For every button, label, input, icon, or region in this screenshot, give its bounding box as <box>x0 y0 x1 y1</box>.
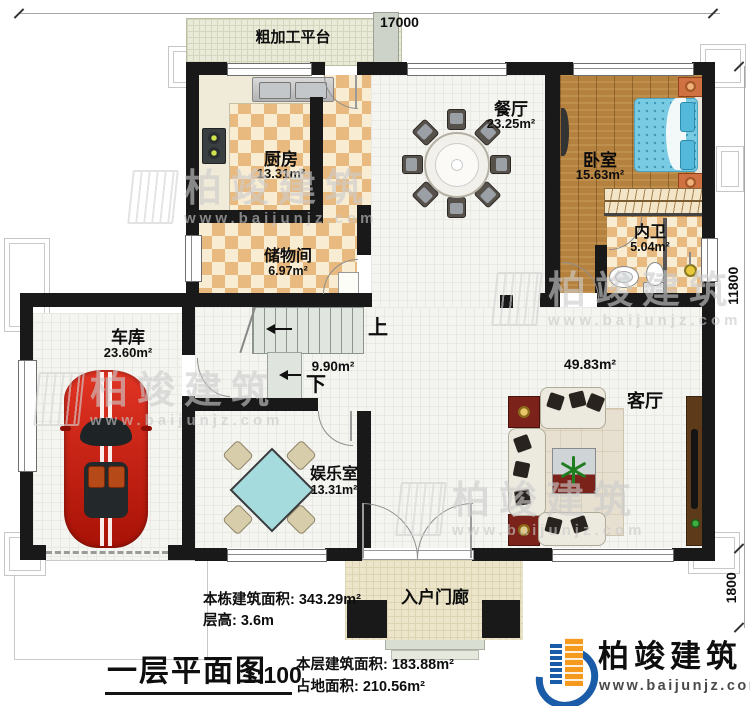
porch-label: 入户门廊 <box>370 588 500 607</box>
sink-basin <box>259 82 291 99</box>
logo-tower-orange <box>565 638 583 686</box>
wall <box>310 62 325 75</box>
wall <box>20 293 372 307</box>
wall <box>357 205 371 255</box>
wall <box>182 396 195 548</box>
watermark-logo <box>127 170 179 224</box>
pillow <box>680 102 695 132</box>
side-table <box>508 514 540 546</box>
car <box>64 370 148 548</box>
wall <box>505 62 573 75</box>
window <box>552 549 674 562</box>
door-leaf <box>470 503 472 558</box>
window <box>227 549 327 562</box>
wall <box>182 307 195 355</box>
bathroom-sink <box>609 266 639 288</box>
wall <box>702 280 715 548</box>
dining-chair <box>402 155 423 174</box>
dining-chair <box>447 109 466 130</box>
car-seat <box>108 466 125 488</box>
sofa-pillow <box>514 489 531 506</box>
garage-area: 23.60m² <box>88 346 168 361</box>
bedroom-area: 15.63m² <box>560 168 640 183</box>
exterior-ledge <box>716 146 744 192</box>
entertainment-area: 13.31m² <box>300 483 368 497</box>
title-underline <box>105 692 292 695</box>
stairs-area: 9.90m² <box>306 359 360 374</box>
kitchen-area: 13.31m² <box>240 167 322 182</box>
floor-height-text: 层高: 3.6m <box>203 613 274 629</box>
pillow <box>680 140 695 170</box>
car-stripes <box>100 372 112 546</box>
window <box>573 63 694 76</box>
wall <box>540 293 560 307</box>
wall <box>195 398 318 411</box>
floor-drain <box>684 264 697 277</box>
partition-line <box>604 213 702 216</box>
dim-right-lower-label: 1800 <box>724 548 740 628</box>
wall <box>597 293 715 307</box>
car-windshield <box>80 418 132 446</box>
wall <box>357 62 407 75</box>
stairs-down-arrow-head <box>279 370 288 380</box>
car-cockpit <box>84 462 128 518</box>
stairs-down-arrow <box>287 374 301 376</box>
window <box>701 238 718 282</box>
stairs-up-label: 上 <box>366 317 390 339</box>
side-table <box>508 396 540 428</box>
window <box>407 63 507 76</box>
brand-logo-icon <box>535 636 593 698</box>
logo-tower-blue <box>550 644 562 684</box>
lamp <box>685 177 696 188</box>
floor-plan: 17000 11800 1800 <box>0 0 750 706</box>
ensuite-area: 5.04m² <box>615 240 685 254</box>
dim-top-label: 17000 <box>380 15 419 31</box>
wall <box>325 548 362 561</box>
door-leaf <box>355 75 357 108</box>
wall <box>20 470 33 548</box>
wall <box>472 548 552 561</box>
wall <box>672 548 715 561</box>
car-mirror <box>141 426 152 431</box>
plan-scale: 1:100 <box>243 663 302 689</box>
wall <box>195 548 227 561</box>
dining-chair <box>447 197 466 218</box>
dining-table <box>424 132 490 198</box>
stairs-up-arrow-head <box>266 324 275 334</box>
door-leaf <box>350 411 352 441</box>
wall <box>20 545 46 560</box>
window <box>185 235 202 282</box>
floor-area-text: 本层建筑面积: 183.88m² <box>296 657 454 673</box>
nightstand <box>678 77 703 97</box>
footprint-text: 占地面积: 210.56m² <box>296 679 425 695</box>
brand-website: www.baijunjz.com <box>599 678 750 694</box>
dim-line-top <box>20 13 720 14</box>
stove-icon <box>202 128 226 164</box>
wall <box>186 210 310 223</box>
garage-door-dashed <box>46 551 168 554</box>
brand-name: 柏竣建筑 <box>598 640 742 675</box>
car-seat <box>88 466 105 488</box>
dining-table-center <box>451 159 463 171</box>
sofa-pillow <box>513 461 531 479</box>
wall <box>186 62 199 215</box>
platform-label: 粗加工平台 <box>186 30 400 47</box>
storage-area: 6.97m² <box>248 264 328 278</box>
stairs-up-arrow <box>274 328 292 330</box>
lamp <box>685 81 696 92</box>
window <box>18 360 37 472</box>
sink-bowl <box>615 271 633 283</box>
column <box>500 295 513 308</box>
wall <box>20 307 33 360</box>
wardrobe <box>604 188 704 215</box>
door-leaf <box>362 503 364 558</box>
plant-icon <box>691 519 700 528</box>
dining-chair <box>490 155 511 174</box>
living-area: 49.83m² <box>552 357 628 373</box>
stairs-down-label: 下 <box>304 374 328 396</box>
building-area-text: 本栋建筑面积: 343.29m² <box>203 592 361 608</box>
side-table-knob <box>518 524 530 536</box>
entertainment-label: 娱乐室 <box>300 466 368 484</box>
fixture-stem <box>689 252 691 265</box>
coffee-table <box>552 448 596 494</box>
dim-right-upper-label: 11800 <box>726 246 742 326</box>
tv-icon <box>691 429 698 509</box>
dining-area: 23.25m² <box>471 117 551 132</box>
burner <box>208 147 220 159</box>
burner <box>208 132 220 144</box>
toilet-icon <box>646 262 664 286</box>
wardrobe-rod <box>605 200 703 202</box>
side-table-knob <box>518 406 530 418</box>
window <box>227 63 312 76</box>
wall <box>702 62 715 238</box>
living-label: 客厅 <box>610 391 680 411</box>
car-mirror <box>60 426 71 431</box>
